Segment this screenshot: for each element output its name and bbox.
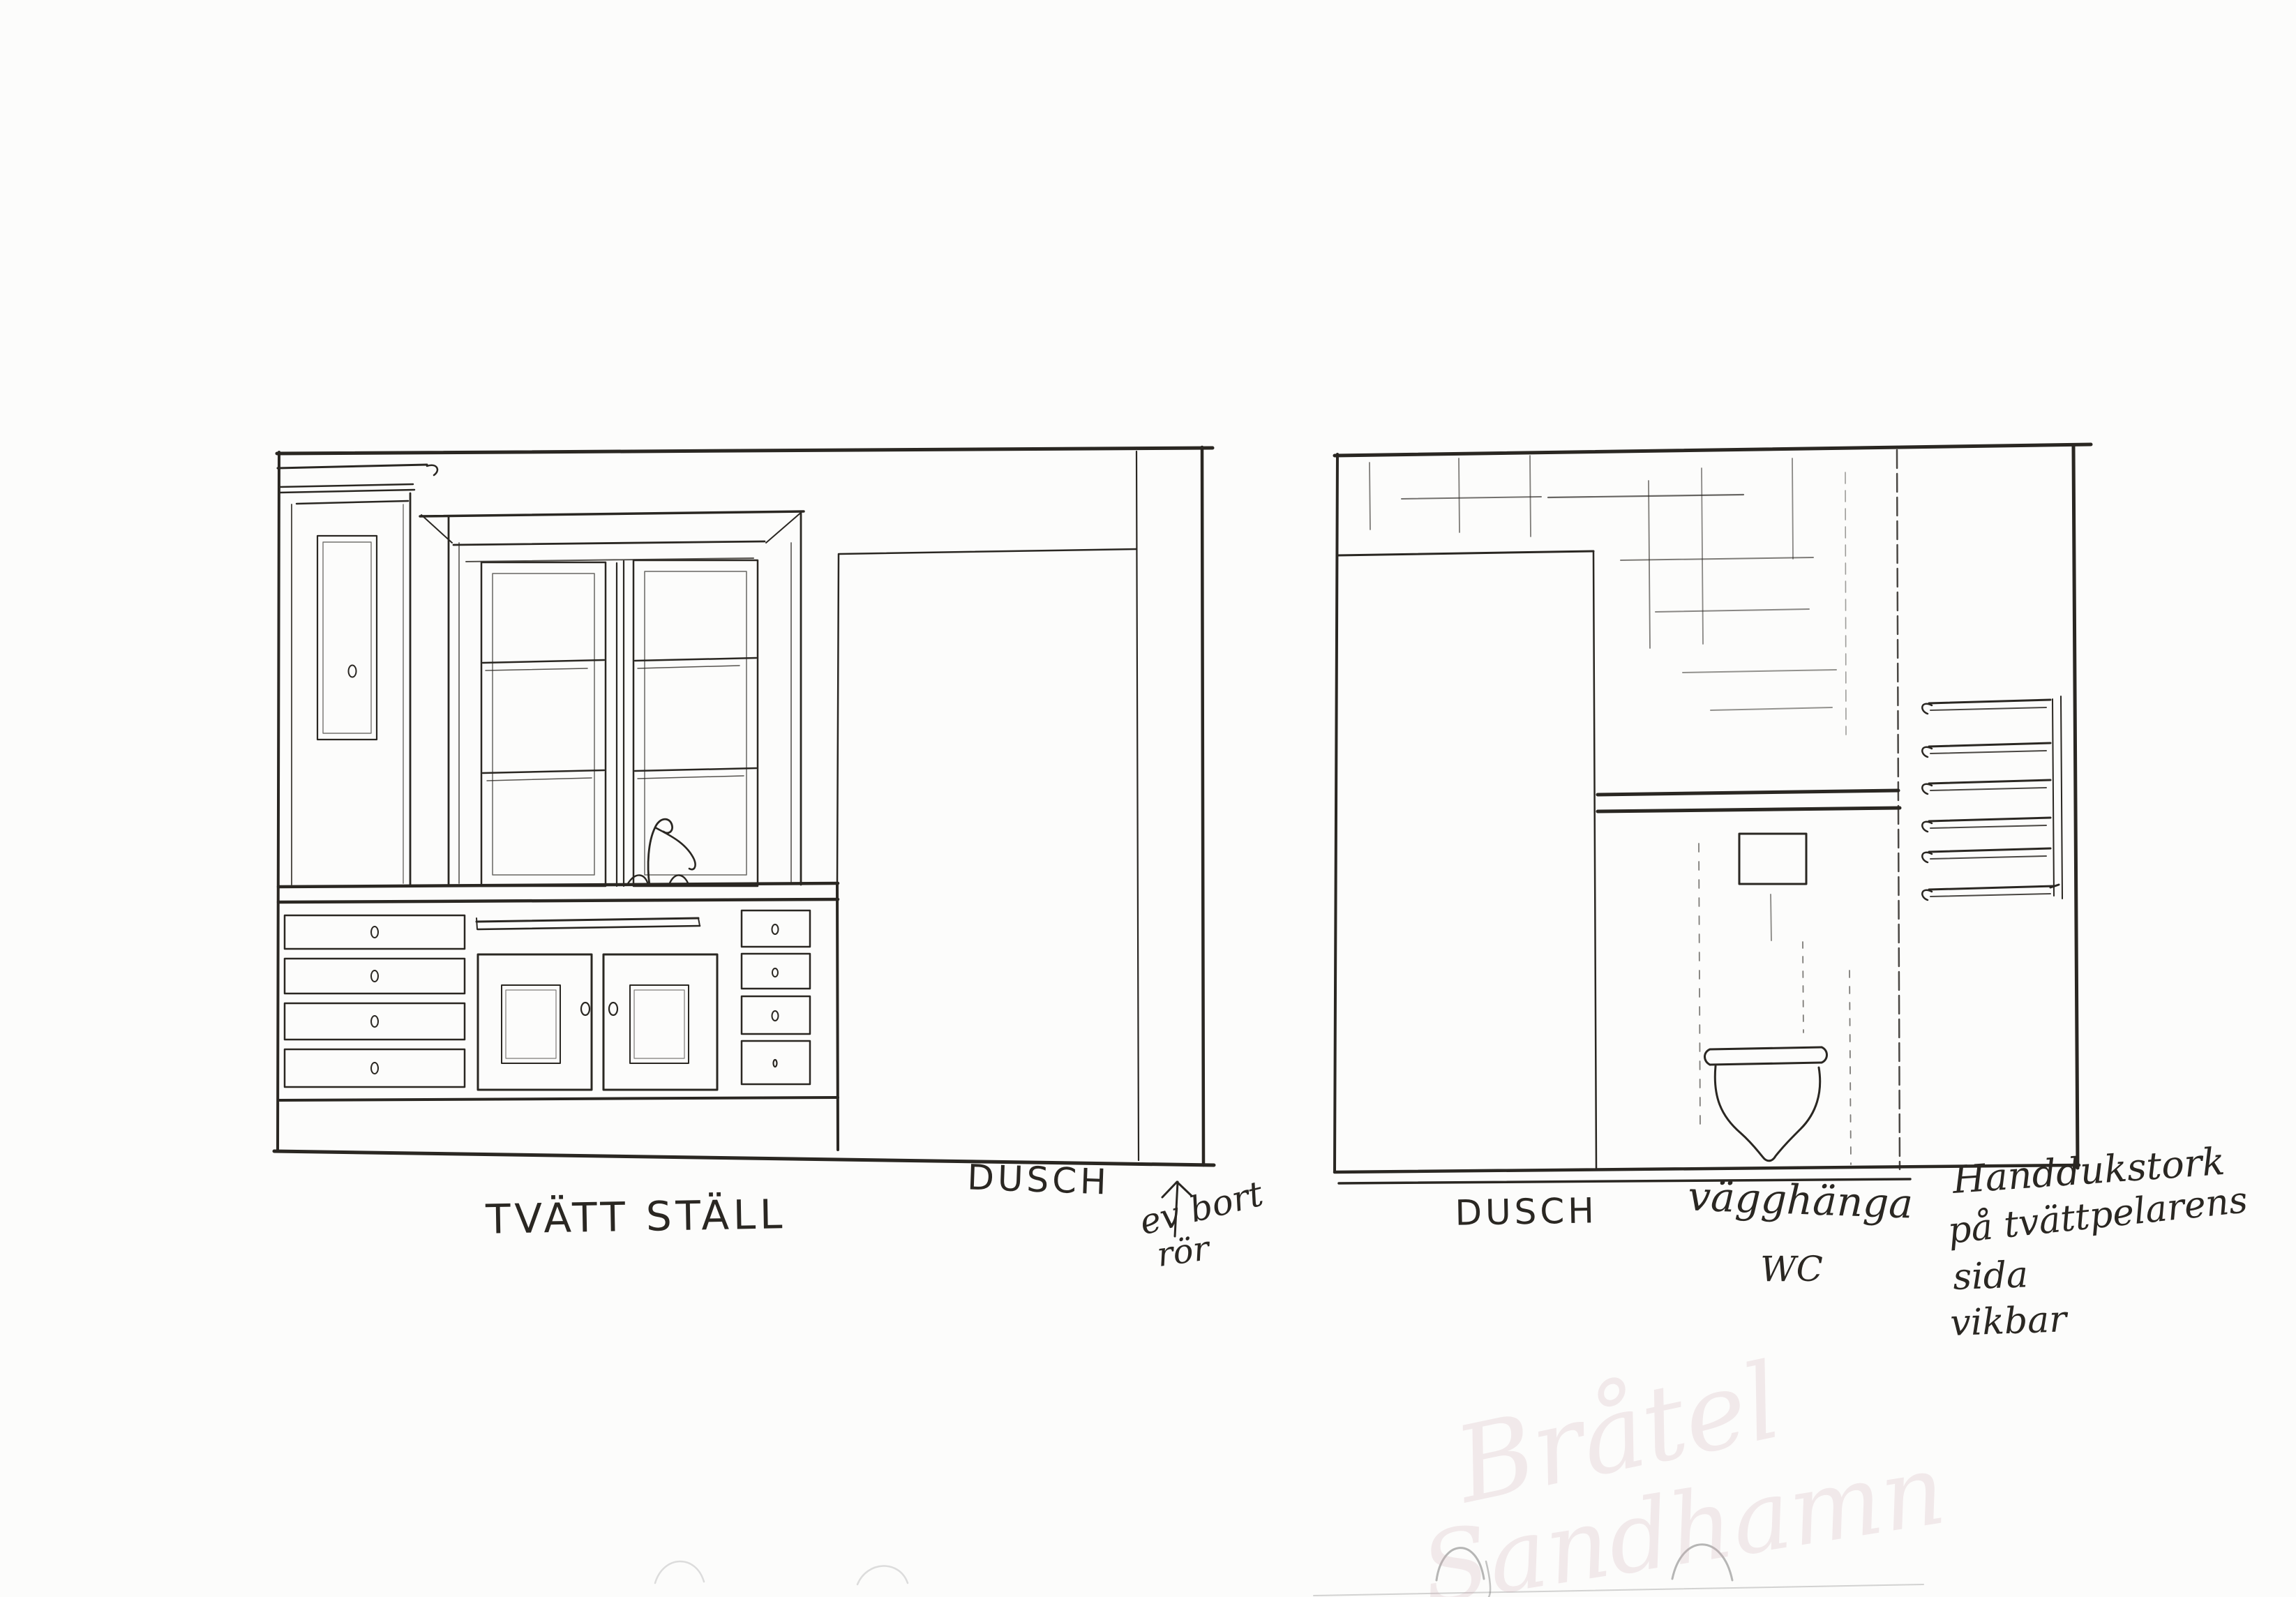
sketch-stroke [477,918,698,922]
sketch-rect [323,542,371,733]
sketch-rect [634,990,684,1058]
sketch-stroke [421,515,452,543]
sketch-rect [742,954,810,989]
knob-oval [349,666,357,677]
sketch-path [655,1561,704,1583]
sketch-stroke [638,776,744,779]
ghost-signature: BråtelSandhamn [1414,1340,1953,1597]
sketch-stroke [477,918,477,929]
sketch-stroke [635,658,756,661]
sketch-stroke [278,899,838,902]
sketch-stroke [278,452,279,1151]
knob-oval [371,927,378,938]
sketch-stroke [280,1097,838,1100]
scanned-sketch-sheet: TVÄTT STÄLLDUSCHev bortrörDUSCHvägghänga… [0,0,2296,1597]
knob-oval [774,1060,777,1067]
sketch-path [648,819,673,885]
sketch-stroke [1929,886,2055,890]
sketch-stroke [1849,970,1851,1164]
sketch-stroke [478,926,700,929]
sketch-stroke [1710,1063,1822,1065]
sketch-stroke [1202,447,1203,1165]
knob-oval [581,1003,590,1015]
sketch-stroke [1929,743,2050,747]
sketch-stroke [1335,454,1337,1172]
sketch-rect [502,985,560,1063]
sketch-stroke [766,511,802,543]
sketch-stroke [1930,894,2050,897]
sketch-stroke [1929,818,2050,821]
sketch-path [1922,890,1932,900]
sketch-stroke [1699,844,1700,1130]
sketch-stroke [1656,609,1809,612]
sketch-stroke [1338,551,1593,555]
sketch-stroke [635,768,756,771]
sketch-path [1705,1049,1711,1065]
right-elevation-drawing [1335,444,2091,1183]
sketch-path [857,1566,908,1584]
sketch-stroke [1136,451,1139,1160]
sketch-stroke [1929,780,2050,783]
sketch-rect [742,996,810,1034]
handwritten-labels: TVÄTT STÄLLDUSCHev bortrörDUSCHvägghänga… [485,1139,2250,1344]
sketch-stroke [1598,808,1900,811]
sketch-rect [603,954,717,1090]
knob-oval [371,1063,378,1074]
sketch-stroke [486,668,587,670]
sketch-rect [493,573,594,875]
knob-oval [371,1016,378,1027]
sketch-stroke [1370,463,1370,530]
sketch-rect [478,954,592,1090]
sketch-stroke [1711,707,1832,710]
sketch-stroke [1792,458,1793,559]
sketch-stroke [453,541,765,545]
knob-oval [609,1003,617,1015]
sketch-stroke [1930,788,2046,790]
sketch-stroke [278,465,427,468]
sketch-stroke [1649,481,1650,648]
sketch-stroke [837,554,839,885]
knob-oval [772,924,779,934]
sketch-stroke [1930,751,2046,753]
left-elevation-drawing [274,447,1214,1236]
sketch-path [1922,704,1932,714]
knob-oval [371,970,378,982]
sketch-stroke [2050,885,2059,887]
sketch-stroke [420,511,804,516]
sketch-stroke [1402,497,1541,499]
sketch-stroke [1459,458,1460,532]
note-ror: rör [1155,1229,1214,1275]
sketch-rect [285,959,465,994]
sketch-stroke [837,885,838,1150]
sketch-stroke [487,778,592,781]
sketch-rect [742,1041,810,1084]
sketch-stroke [1710,1047,1822,1049]
sketch-stroke [1530,456,1531,537]
sketch-stroke [698,918,700,926]
sketch-path [427,465,437,475]
sketch-stroke [297,501,408,504]
sketch-rect [481,562,606,886]
sketch-stroke [1803,942,1803,1033]
sketch-path [1922,747,1932,757]
sketch-stroke [1598,790,1898,795]
label-tvattstall: TVÄTT STÄLL [485,1190,787,1243]
sketch-stroke [1593,551,1596,1168]
sketch-stroke [1930,825,2046,828]
sketch-stroke [483,660,604,663]
sketch-stroke [1845,472,1846,735]
sketch-path [1922,784,1932,794]
sketch-stroke [1929,700,2050,703]
sketch-rect [317,536,377,740]
sketch-path [655,827,696,869]
sketch-path [1715,1066,1819,1161]
sketch-path [1822,1047,1827,1063]
sketch-rect [285,1003,465,1040]
sketch-rect [1739,834,1806,884]
sketch-stroke [483,770,604,773]
knob-oval [772,1011,779,1021]
sketch-stroke [1930,856,2046,859]
sketch-stroke [1548,495,1743,497]
sketch-stroke [638,666,740,668]
sketch-rect [285,915,465,949]
note-handdukstork-line3: sida [1952,1254,2029,1298]
label-vagghangd-wc-line1: vägghänga [1687,1172,1914,1227]
sketch-rect [506,990,556,1058]
note-handdukstork-line4: vikbar [1949,1298,2069,1344]
sketch-rect [285,1049,465,1087]
knob-oval [772,968,778,977]
sketch-stroke [1683,670,1836,673]
sketch-path [1922,822,1932,832]
sketch-stroke [2073,446,2078,1168]
sketch-rect [630,985,689,1063]
sketch-rect [742,910,810,947]
sketch-path [1922,853,1932,862]
sketch-stroke [280,490,414,493]
label-vagghangd-wc-line2: WC [1760,1249,1823,1289]
sketch-stroke [839,549,1136,554]
sketch-stroke [1929,848,2050,852]
sketch-stroke [277,448,1213,453]
sketch-canvas: TVÄTT STÄLLDUSCHev bortrörDUSCHvägghänga… [0,0,2296,1597]
label-dusch-left: DUSCH [966,1157,1110,1202]
sketch-stroke [1771,894,1771,940]
sketch-stroke [1335,444,2091,456]
sketch-stroke [2053,699,2054,896]
sketch-stroke [1930,707,2046,710]
sketch-stroke [279,484,413,487]
sketch-stroke [2061,696,2062,899]
label-dusch-right: DUSCH [1455,1190,1598,1234]
